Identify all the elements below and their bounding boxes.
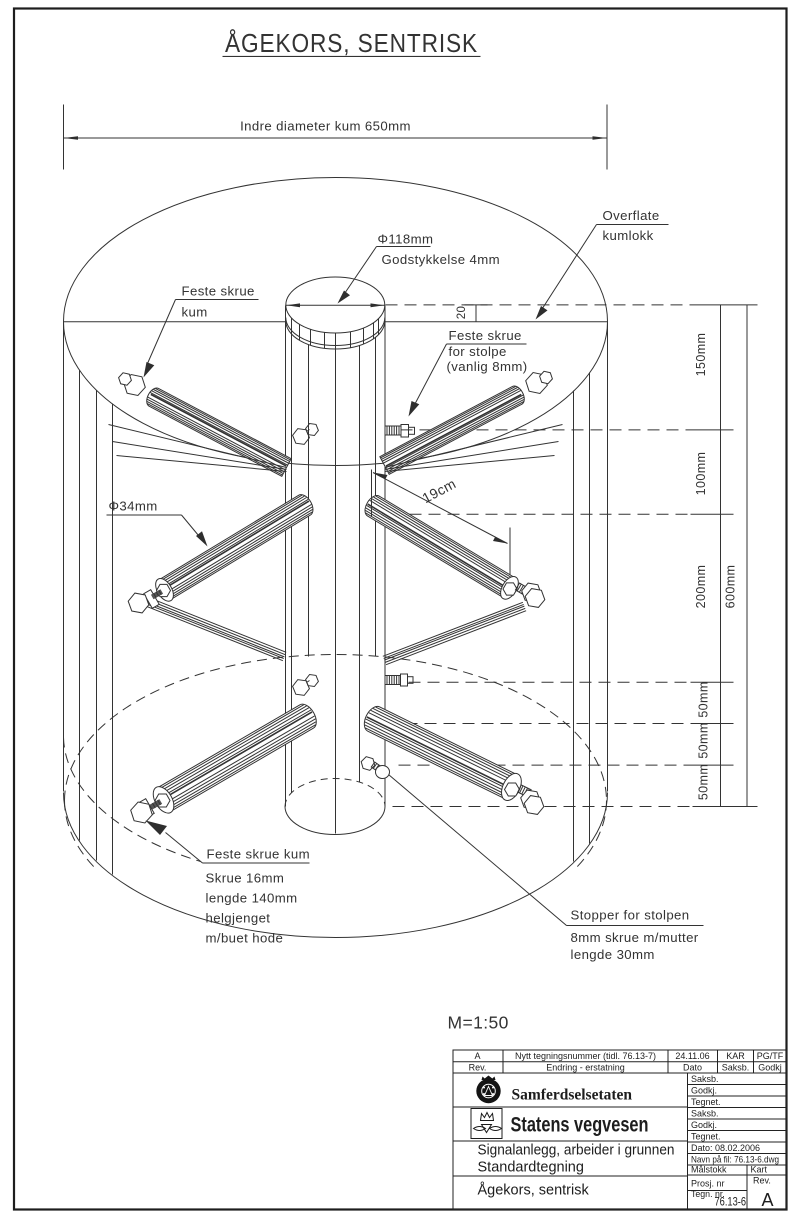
svg-text:Tegnet.: Tegnet.: [691, 1132, 721, 1142]
svg-text:A: A: [474, 1051, 480, 1061]
svg-text:50mm: 50mm: [697, 764, 711, 800]
svg-text:Dato: 08.02.2006: Dato: 08.02.2006: [691, 1143, 760, 1153]
svg-text:Saksb.: Saksb.: [691, 1074, 719, 1084]
svg-text:A: A: [762, 1190, 774, 1210]
svg-text:Statens vegvesen: Statens vegvesen: [511, 1114, 649, 1137]
svg-text:20: 20: [456, 306, 468, 320]
svg-text:50mm: 50mm: [697, 722, 711, 758]
svg-text:kum: kum: [182, 305, 208, 320]
svg-text:KAR: KAR: [726, 1051, 745, 1061]
svg-text:Prosj. nr: Prosj. nr: [691, 1179, 725, 1189]
svg-text:Skrue 16mm: Skrue 16mm: [206, 871, 285, 886]
svg-text:600mm: 600mm: [724, 565, 738, 609]
svg-text:50mm: 50mm: [697, 681, 711, 717]
svg-text:ÅGEKORS, SENTRISK: ÅGEKORS, SENTRISK: [225, 28, 478, 58]
svg-text:M=1:50: M=1:50: [448, 1013, 509, 1033]
svg-text:Målstokk: Målstokk: [691, 1165, 727, 1175]
svg-text:Stopper for stolpen: Stopper for stolpen: [571, 908, 690, 923]
svg-text:Samferdselsetaten: Samferdselsetaten: [512, 1087, 633, 1104]
svg-text:Endring - erstatning: Endring - erstatning: [546, 1063, 625, 1073]
svg-text:Standardtegning: Standardtegning: [478, 1160, 584, 1176]
svg-text:Overflate: Overflate: [603, 208, 660, 223]
svg-text:(vanlig 8mm): (vanlig 8mm): [447, 359, 528, 374]
svg-text:24.11.06: 24.11.06: [675, 1051, 709, 1061]
svg-text:Navn på fil: 76.13-6.dwg: Navn på fil: 76.13-6.dwg: [691, 1155, 779, 1165]
svg-text:Kart: Kart: [751, 1165, 768, 1175]
svg-text:200mm: 200mm: [694, 565, 708, 609]
svg-text:Saksb.: Saksb.: [722, 1063, 750, 1073]
svg-text:kumlokk: kumlokk: [603, 228, 654, 243]
svg-text:Godkj.: Godkj.: [691, 1120, 717, 1130]
svg-text:Godkj: Godkj: [758, 1063, 782, 1073]
svg-text:Tegnet.: Tegnet.: [691, 1097, 721, 1107]
svg-text:lengde 140mm: lengde 140mm: [206, 891, 298, 906]
svg-text:Godstykkelse 4mm: Godstykkelse 4mm: [382, 252, 501, 267]
svg-text:Ågekors, sentrisk: Ågekors, sentrisk: [478, 1182, 590, 1199]
svg-text:Feste skrue: Feste skrue: [182, 284, 255, 299]
svg-text:Saksb.: Saksb.: [691, 1109, 719, 1119]
svg-text:Φ34mm: Φ34mm: [109, 499, 158, 514]
svg-text:8mm skrue m/mutter: 8mm skrue m/mutter: [571, 930, 699, 945]
svg-text:Φ118mm: Φ118mm: [378, 232, 434, 247]
svg-text:150mm: 150mm: [694, 333, 708, 377]
svg-text:Feste skrue: Feste skrue: [449, 328, 522, 343]
svg-text:m/buet hode: m/buet hode: [206, 931, 284, 946]
svg-text:lengde 30mm: lengde 30mm: [571, 947, 655, 962]
svg-text:for stolpe: for stolpe: [449, 344, 507, 359]
svg-text:Feste skrue kum: Feste skrue kum: [207, 847, 310, 862]
svg-text:Godkj.: Godkj.: [691, 1086, 717, 1096]
svg-text:Signalanlegg, arbeider i grunn: Signalanlegg, arbeider i grunnen: [478, 1143, 675, 1159]
svg-text:Dato: Dato: [683, 1063, 702, 1073]
svg-text:76.13-6: 76.13-6: [715, 1195, 747, 1209]
svg-text:Nytt tegningsnummer (tidl. 76.: Nytt tegningsnummer (tidl. 76.13-7): [515, 1051, 656, 1061]
svg-text:helgjenget: helgjenget: [206, 911, 271, 926]
svg-text:Rev.: Rev.: [753, 1176, 771, 1186]
svg-text:100mm: 100mm: [694, 452, 708, 496]
svg-text:Indre diameter kum 650mm: Indre diameter kum 650mm: [240, 119, 411, 134]
svg-text:PG/TF: PG/TF: [757, 1051, 784, 1061]
svg-text:Rev.: Rev.: [469, 1063, 487, 1073]
